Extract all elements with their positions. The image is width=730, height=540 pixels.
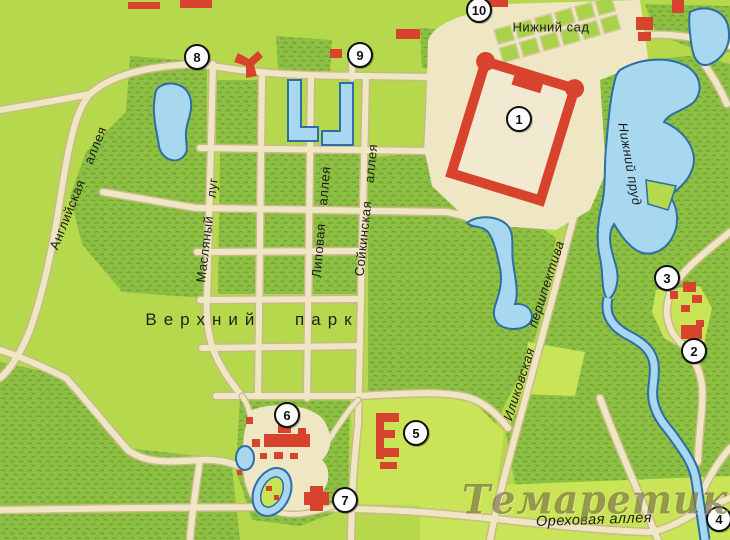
upper-left-pond <box>154 84 191 161</box>
small-cluster-pond <box>236 446 254 470</box>
map-marker-9[interactable]: 9 <box>347 42 373 68</box>
park-map: Нижний сад Нижний пруд Английская аллея … <box>0 0 730 540</box>
map-marker-4[interactable]: 4 <box>706 506 730 532</box>
map-marker-7[interactable]: 7 <box>332 487 358 513</box>
map-marker-1[interactable]: 1 <box>506 106 532 132</box>
map-marker-6[interactable]: 6 <box>274 402 300 428</box>
label-verkhny-park: Верхний парк <box>145 310 358 330</box>
map-marker-3[interactable]: 3 <box>654 265 680 291</box>
map-marker-2[interactable]: 2 <box>681 338 707 364</box>
label-nizhny-sad: Нижний сад <box>513 20 590 35</box>
map-marker-8[interactable]: 8 <box>184 44 210 70</box>
corner-pond <box>689 8 729 65</box>
canal-right <box>322 83 353 145</box>
map-marker-5[interactable]: 5 <box>403 420 429 446</box>
